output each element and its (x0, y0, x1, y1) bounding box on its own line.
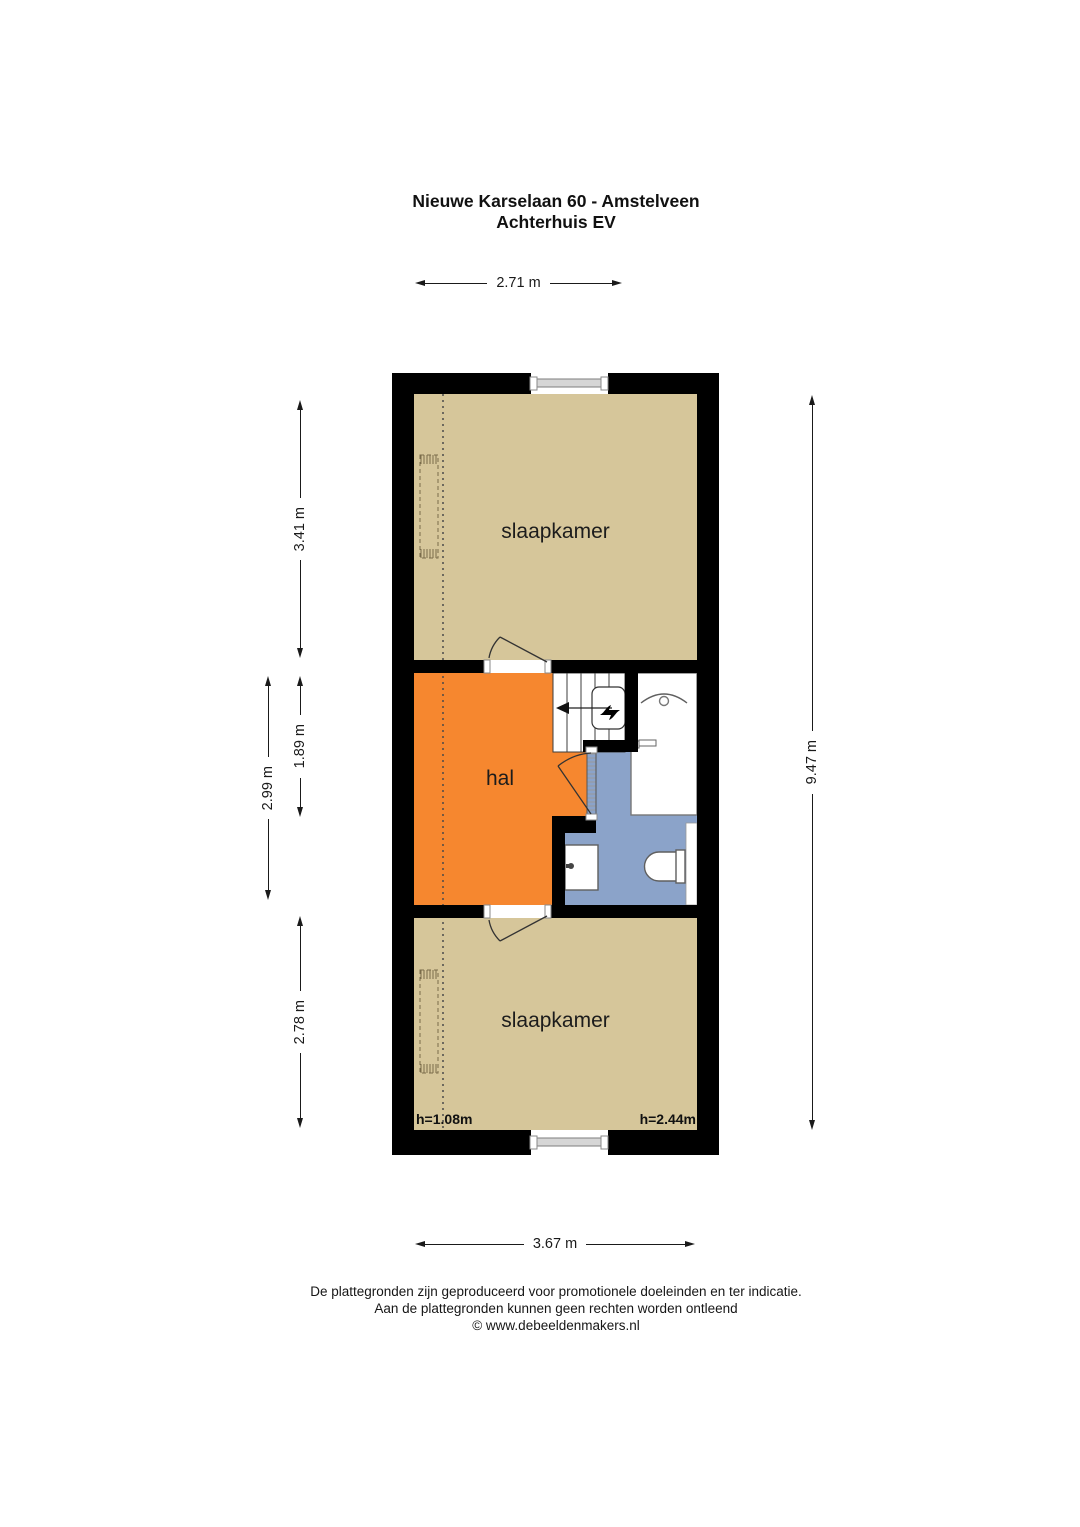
ceiling-height-left-label: h=1.08m (416, 1111, 472, 1127)
dimension-bottom-width: 3.67 m (415, 1237, 695, 1251)
bedroom-top-label: slaapkamer (414, 520, 697, 544)
page-title: Nieuwe Karselaan 60 - Amstelveen Achterh… (26, 191, 1080, 233)
arrow-up-icon (297, 676, 303, 686)
floorplan-drawing (392, 373, 719, 1155)
ceiling-height-right-label: h=2.44m (546, 1111, 696, 1127)
arrow-down-icon (809, 1120, 815, 1130)
dimension-bedroom-bottom-depth: 2.78 m (293, 916, 307, 1128)
dimension-bedroom-top-depth-label: 3.41 m (292, 498, 308, 560)
dimension-right-height: 9.47 m (805, 395, 819, 1130)
dimension-top-width-label: 2.71 m (487, 275, 549, 291)
hall-label: hal (414, 767, 586, 791)
arrow-up-icon (297, 400, 303, 410)
arrow-down-icon (297, 807, 303, 817)
arrow-up-icon (809, 395, 815, 405)
window-bottom (530, 1136, 608, 1149)
arrow-up-icon (265, 676, 271, 686)
footer-copyright: © www.debeeldenmakers.nl (26, 1317, 1080, 1334)
arrow-down-icon (265, 890, 271, 900)
dimension-middle-depth-outer: 2.99 m (261, 676, 275, 900)
title-address: Nieuwe Karselaan 60 - Amstelveen (26, 191, 1080, 212)
sink (565, 845, 598, 890)
window-top (530, 377, 608, 390)
footer-disclaimer: De plattegronden zijn geproduceerd voor … (26, 1283, 1080, 1334)
dimension-hall-depth-inner: 1.89 m (293, 676, 307, 817)
dimension-bedroom-bottom-depth-label: 2.78 m (292, 991, 308, 1053)
arrow-up-icon (297, 916, 303, 926)
arrow-right-icon (685, 1241, 695, 1247)
bathroom-shelf (686, 823, 697, 905)
footer-line1: De plattegronden zijn geproduceerd voor … (26, 1283, 1080, 1300)
shower-head-icon (660, 697, 669, 706)
arrow-down-icon (297, 648, 303, 658)
door-leaf-closed (587, 752, 596, 816)
arrow-right-icon (612, 280, 622, 286)
arrow-left-icon (415, 280, 425, 286)
footer-line2: Aan de plattegronden kunnen geen rechten… (26, 1300, 1080, 1317)
arrow-left-icon (415, 1241, 425, 1247)
dimension-top-width: 2.71 m (415, 276, 622, 290)
title-floor: Achterhuis EV (26, 212, 1080, 233)
dimension-hall-depth-inner-label: 1.89 m (292, 715, 308, 777)
shower (630, 673, 697, 815)
dimension-bedroom-top-depth: 3.41 m (293, 400, 307, 658)
toilet (645, 850, 686, 883)
dimension-middle-depth-outer-label: 2.99 m (260, 757, 276, 819)
dimension-bottom-width-label: 3.67 m (524, 1236, 586, 1252)
arrow-down-icon (297, 1118, 303, 1128)
dimension-right-height-label: 9.47 m (804, 731, 820, 793)
bedroom-bottom-label: slaapkamer (414, 1009, 697, 1033)
